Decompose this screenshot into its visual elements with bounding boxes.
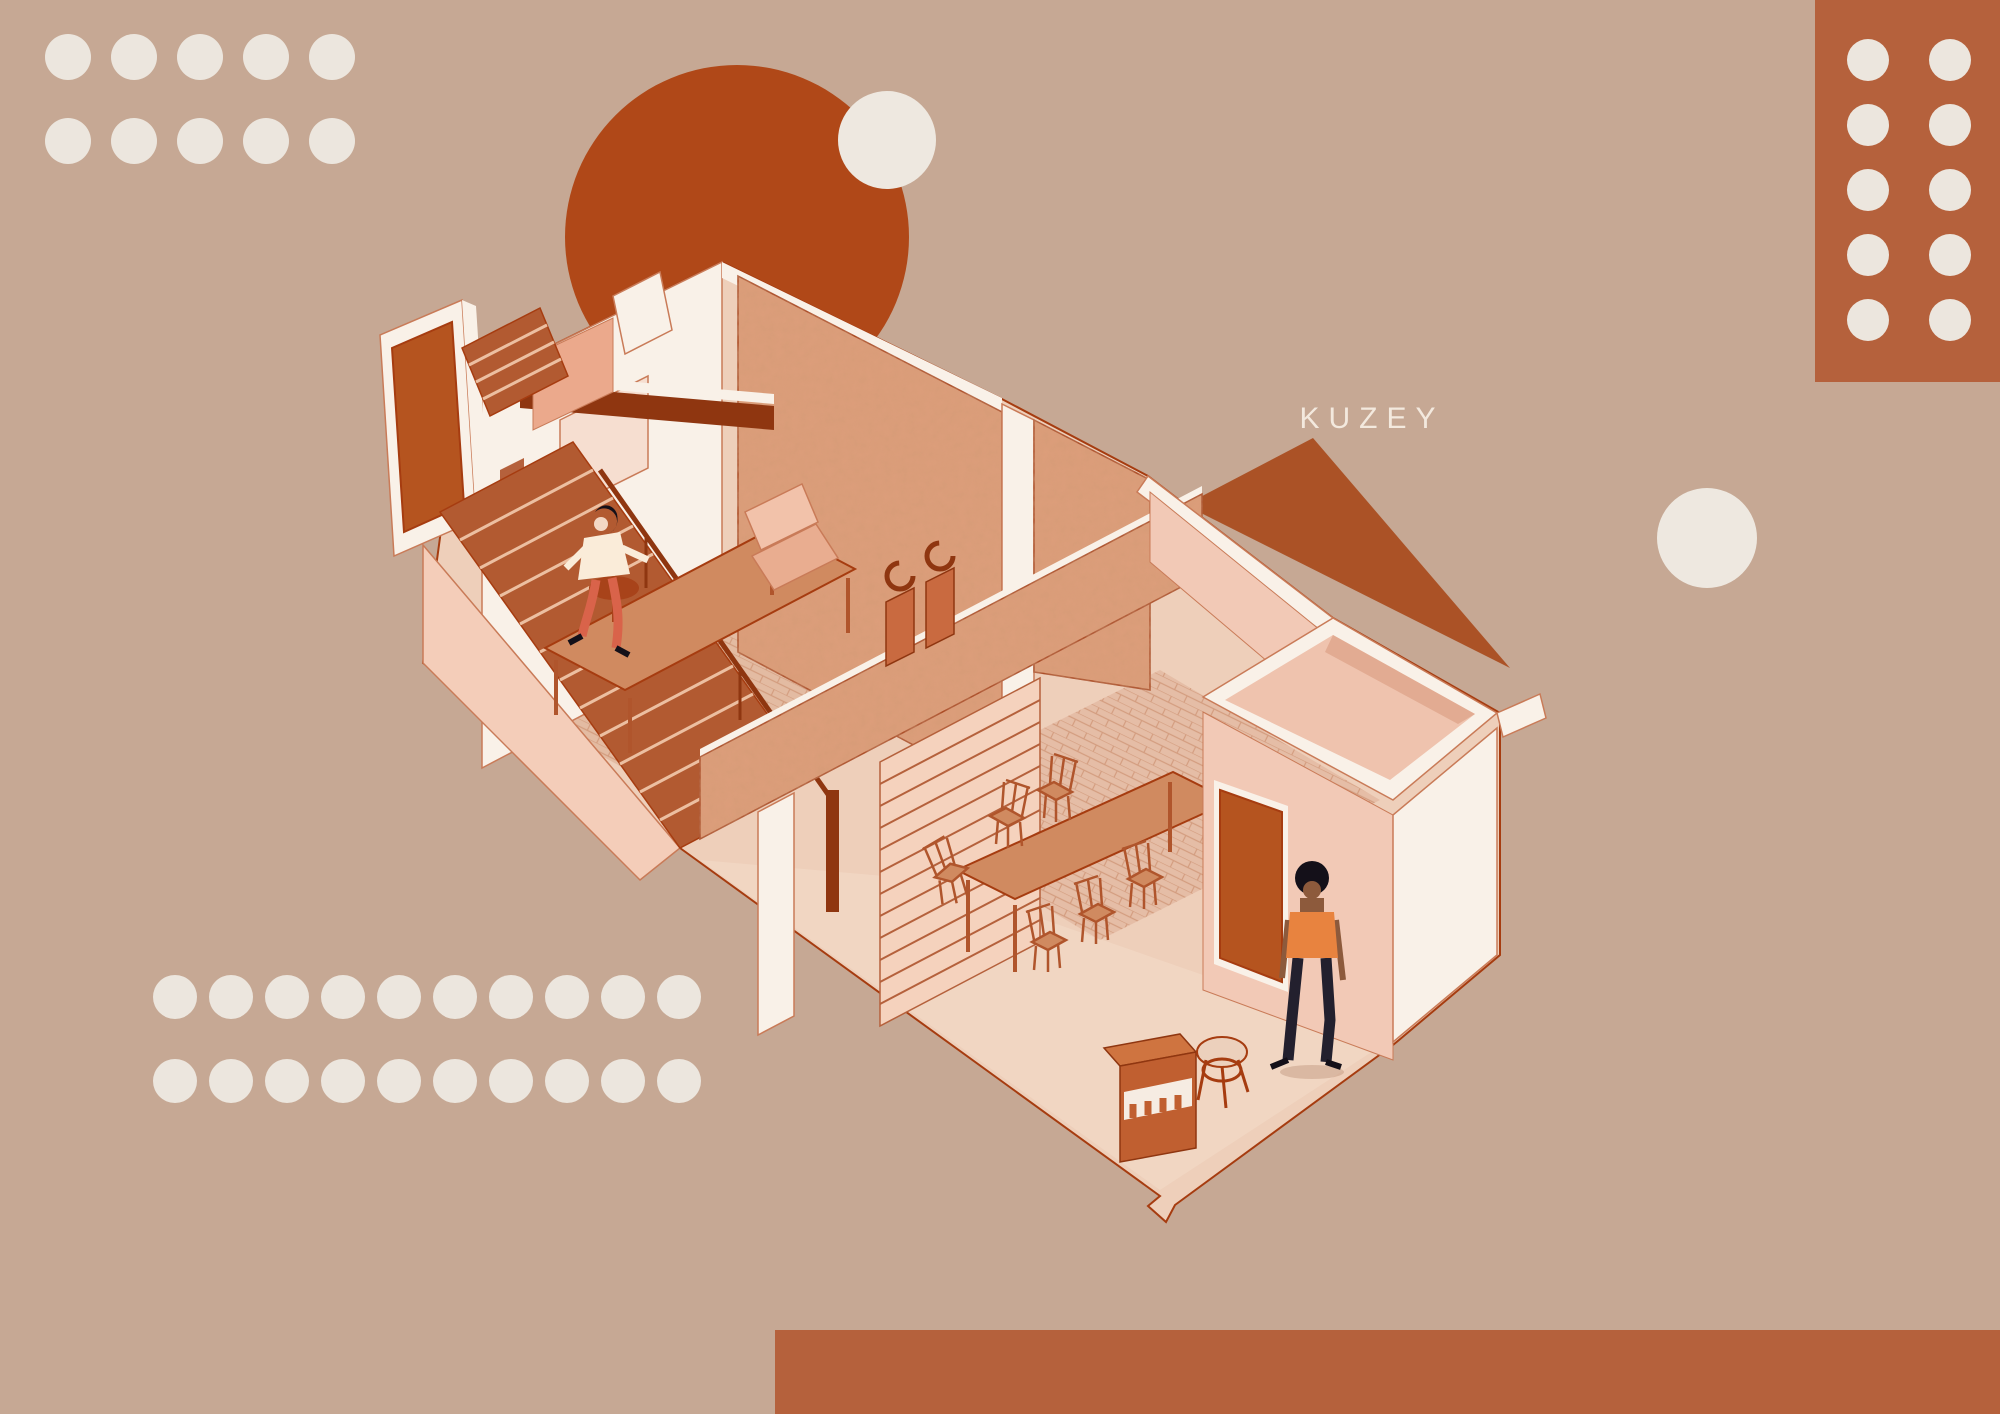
newel-post	[826, 790, 839, 912]
poster-canvas: KUZEY	[0, 0, 2000, 1414]
exterior-door	[392, 322, 464, 532]
interior-door	[1220, 790, 1282, 982]
partition-column	[758, 793, 794, 1035]
bottom-bar	[775, 1330, 2000, 1414]
north-label: KUZEY	[1299, 402, 1444, 435]
dotted-panel-top-right	[1815, 0, 2000, 382]
illustration-svg: KUZEY	[0, 0, 2000, 1414]
small-circle-top	[838, 91, 936, 189]
small-circle-right	[1657, 488, 1757, 588]
